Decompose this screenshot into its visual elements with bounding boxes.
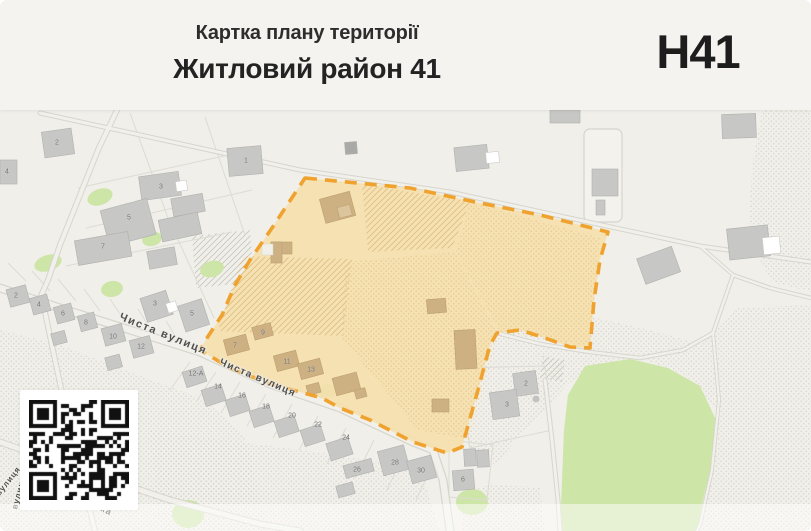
qr-panel bbox=[20, 390, 138, 510]
card-header: Картка плану території Житловий район 41… bbox=[0, 0, 811, 110]
qr-code bbox=[29, 400, 129, 500]
card-subtitle: Картка плану території bbox=[0, 22, 614, 45]
card-title: Житловий район 41 bbox=[0, 53, 614, 85]
territory-plan-card: Чиста вулицяЧиста вулицяКозацькавулицяву… bbox=[0, 0, 811, 531]
zone-code: Н41 bbox=[633, 24, 763, 79]
